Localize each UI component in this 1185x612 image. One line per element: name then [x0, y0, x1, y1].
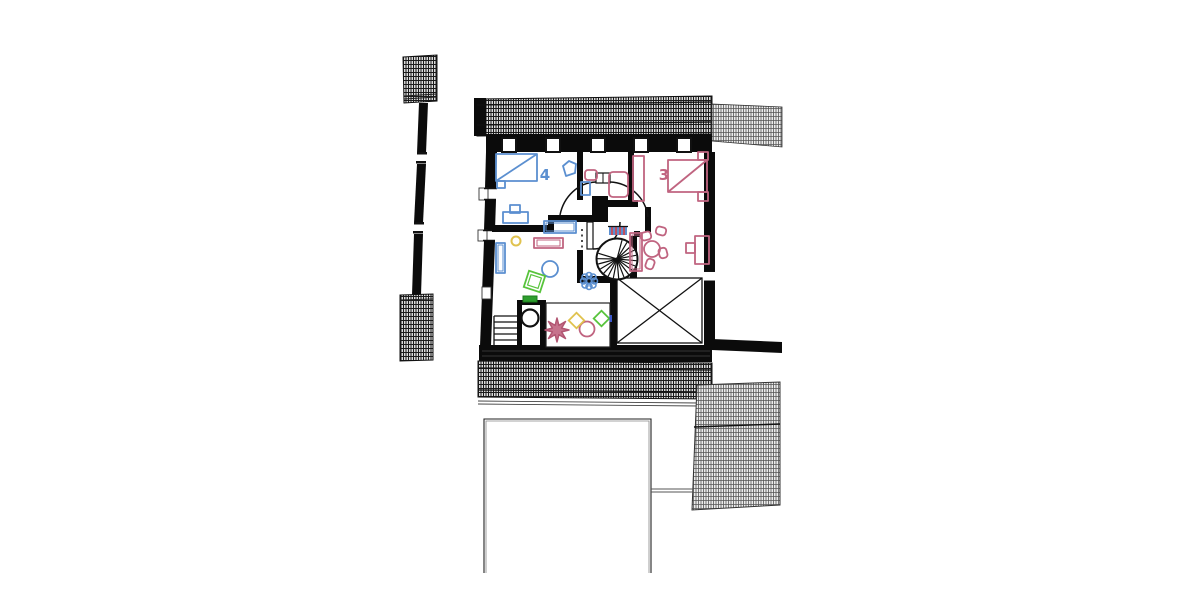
left-window [482, 287, 491, 299]
strip-window-tick [414, 222, 424, 225]
roof-hatch-top-right [712, 104, 782, 147]
green-mat [524, 271, 545, 292]
strip-window-tick [416, 161, 426, 164]
chair [563, 161, 576, 176]
right-extension-wall [712, 339, 782, 353]
green-lid [523, 296, 537, 302]
roof-hatch-bottom [478, 361, 712, 406]
column-dot [634, 231, 640, 237]
skylight-window [634, 138, 648, 152]
blue-tick [610, 315, 613, 322]
nightstand [497, 181, 505, 188]
stool [585, 170, 597, 180]
door-leaf [587, 222, 593, 249]
void-opening-x [617, 278, 702, 343]
chair [658, 247, 668, 259]
chair [655, 226, 667, 236]
skylight-window [591, 138, 605, 152]
floor-plan-drawing: 4 3 [0, 0, 1185, 612]
left-window [479, 188, 488, 200]
spiral-staircase [597, 239, 638, 280]
strip-wall-seg [414, 164, 426, 223]
right-wall-seg [704, 281, 715, 345]
detached-wall-strip [400, 55, 437, 361]
round-table [542, 261, 558, 277]
floor-plan-canvas: 4 3 [0, 0, 1185, 612]
strip-window-tick [413, 231, 423, 234]
roof-panel-lower-right [692, 382, 780, 510]
shelf [496, 243, 505, 273]
chair [645, 258, 656, 270]
strip-window-tick [417, 152, 427, 155]
strip-roof-hatch-bottom [400, 294, 433, 361]
crib [609, 172, 628, 197]
straight-stairs [494, 316, 517, 346]
room-label-4: 4 [540, 166, 550, 184]
wardrobe [633, 156, 644, 201]
striped-radiator [608, 227, 628, 236]
left-window [478, 230, 487, 241]
fixture-circle [522, 310, 539, 327]
chair [686, 243, 695, 253]
skylight-window [502, 138, 516, 152]
strip-wall-seg [417, 103, 428, 153]
plant-scribble [545, 318, 569, 342]
room-label-3: 3 [659, 166, 669, 184]
yellow-ring [512, 237, 521, 246]
skylight-window [677, 138, 691, 152]
lower-floor-outline [484, 419, 693, 573]
round-table [644, 241, 660, 257]
strip-wall-seg [412, 234, 423, 295]
skylight-window [546, 138, 560, 152]
